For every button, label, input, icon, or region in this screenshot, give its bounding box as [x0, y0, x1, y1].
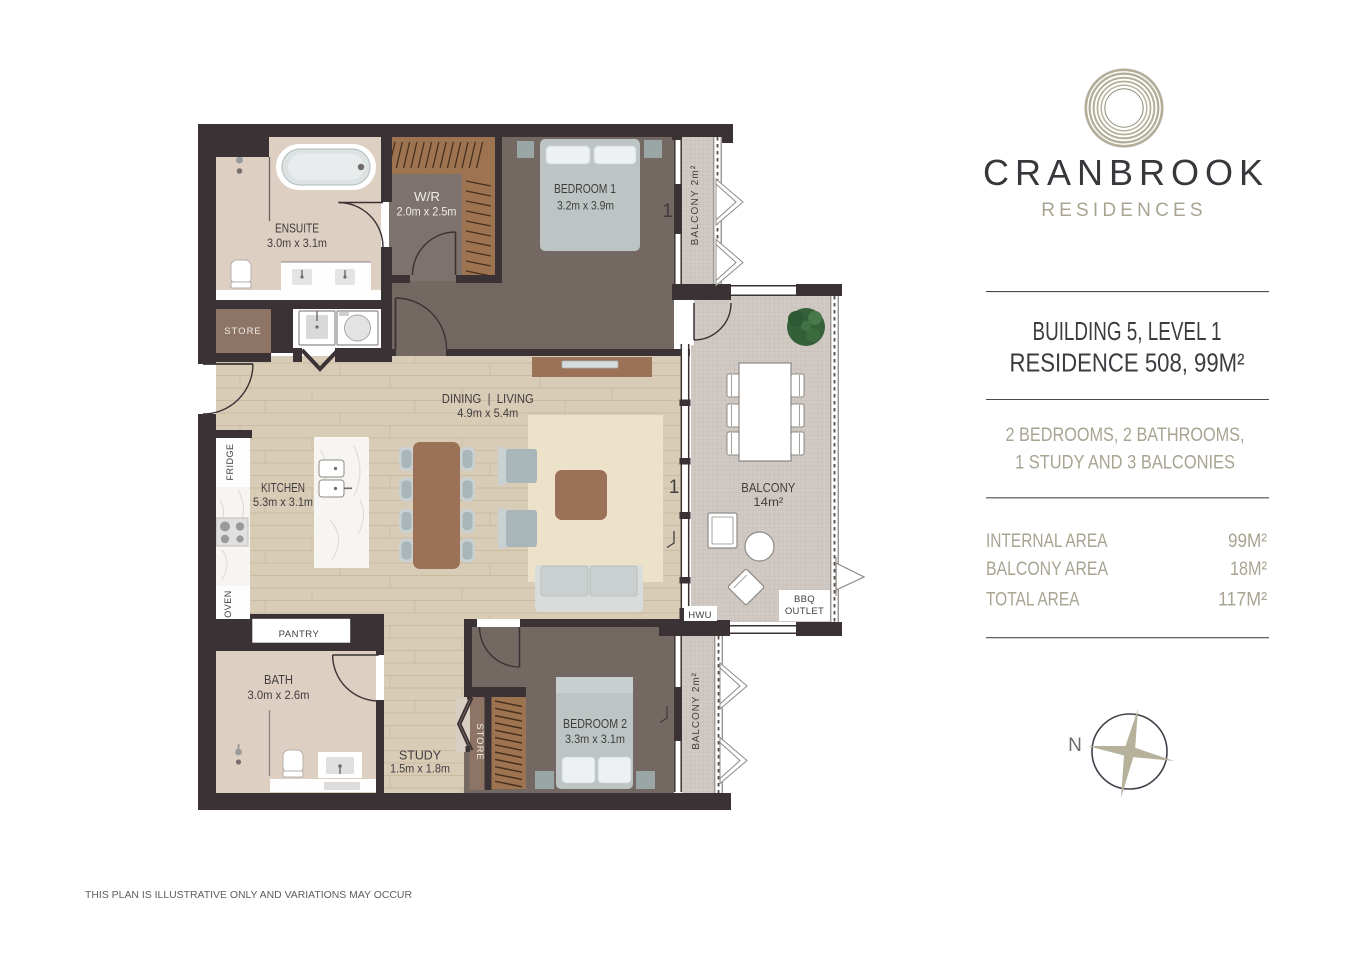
svg-text:99M²: 99M²: [1228, 531, 1267, 552]
svg-text:117M²: 117M²: [1218, 590, 1267, 611]
svg-text:THIS PLAN IS ILLUSTRATIVE ONLY: THIS PLAN IS ILLUSTRATIVE ONLY AND VARIA…: [85, 890, 412, 901]
svg-text:W/R: W/R: [414, 190, 440, 204]
svg-text:5.3m x 3.1m: 5.3m x 3.1m: [253, 495, 313, 509]
svg-text:BALCONY 2m²: BALCONY 2m²: [691, 672, 702, 750]
svg-text:4.9m x 5.4m: 4.9m x 5.4m: [457, 406, 518, 420]
svg-text:CRANBROOK: CRANBROOK: [983, 152, 1269, 193]
svg-text:STORE: STORE: [224, 326, 262, 337]
svg-text:BALCONY: BALCONY: [741, 481, 796, 495]
svg-text:BALCONY 2m²: BALCONY 2m²: [690, 165, 701, 246]
svg-text:18M²: 18M²: [1230, 559, 1267, 580]
svg-text:3.3m x 3.1m: 3.3m x 3.1m: [565, 732, 625, 746]
svg-text:RESIDENCE 508, 99M²: RESIDENCE 508, 99M²: [1010, 350, 1245, 378]
svg-text:STUDY: STUDY: [399, 749, 442, 763]
svg-text:KITCHEN: KITCHEN: [261, 481, 305, 495]
svg-text:1: 1: [662, 201, 673, 222]
svg-text:2.0m x 2.5m: 2.0m x 2.5m: [397, 205, 457, 219]
svg-text:1 STUDY AND 3 BALCONIES: 1 STUDY AND 3 BALCONIES: [1015, 452, 1235, 474]
svg-text:RESIDENCES: RESIDENCES: [1041, 200, 1207, 221]
svg-text:HWU: HWU: [688, 610, 712, 621]
svg-text:3.0m x 3.1m: 3.0m x 3.1m: [267, 236, 327, 250]
svg-text:14m²: 14m²: [753, 495, 783, 509]
svg-text:BATH: BATH: [264, 673, 293, 687]
svg-text:STORE: STORE: [474, 723, 485, 761]
svg-text:BEDROOM 2: BEDROOM 2: [563, 717, 627, 731]
svg-text:OUTLET: OUTLET: [785, 606, 824, 617]
svg-text:1.5m x 1.8m: 1.5m x 1.8m: [390, 762, 450, 776]
svg-text:BALCONY AREA: BALCONY AREA: [986, 559, 1108, 580]
svg-text:TOTAL AREA: TOTAL AREA: [986, 590, 1080, 611]
svg-text:PANTRY: PANTRY: [279, 629, 320, 640]
svg-text:BUILDING 5, LEVEL 1: BUILDING 5, LEVEL 1: [1033, 318, 1222, 346]
svg-text:BEDROOM 1: BEDROOM 1: [554, 182, 616, 196]
svg-text:OVEN: OVEN: [223, 590, 233, 618]
svg-text:FRIDGE: FRIDGE: [225, 443, 235, 480]
svg-text:DINING | LIVING: DINING | LIVING: [442, 392, 534, 406]
svg-text:3.2m x 3.9m: 3.2m x 3.9m: [557, 199, 614, 213]
svg-text:ENSUITE: ENSUITE: [275, 222, 319, 236]
svg-text:3.0m x 2.6m: 3.0m x 2.6m: [248, 688, 310, 702]
svg-text:BBQ: BBQ: [794, 594, 815, 605]
svg-text:2 BEDROOMS, 2 BATHROOMS,: 2 BEDROOMS, 2 BATHROOMS,: [1006, 424, 1245, 446]
svg-text:1: 1: [669, 477, 680, 498]
svg-text:N: N: [1068, 735, 1082, 756]
svg-text:INTERNAL AREA: INTERNAL AREA: [986, 531, 1108, 552]
